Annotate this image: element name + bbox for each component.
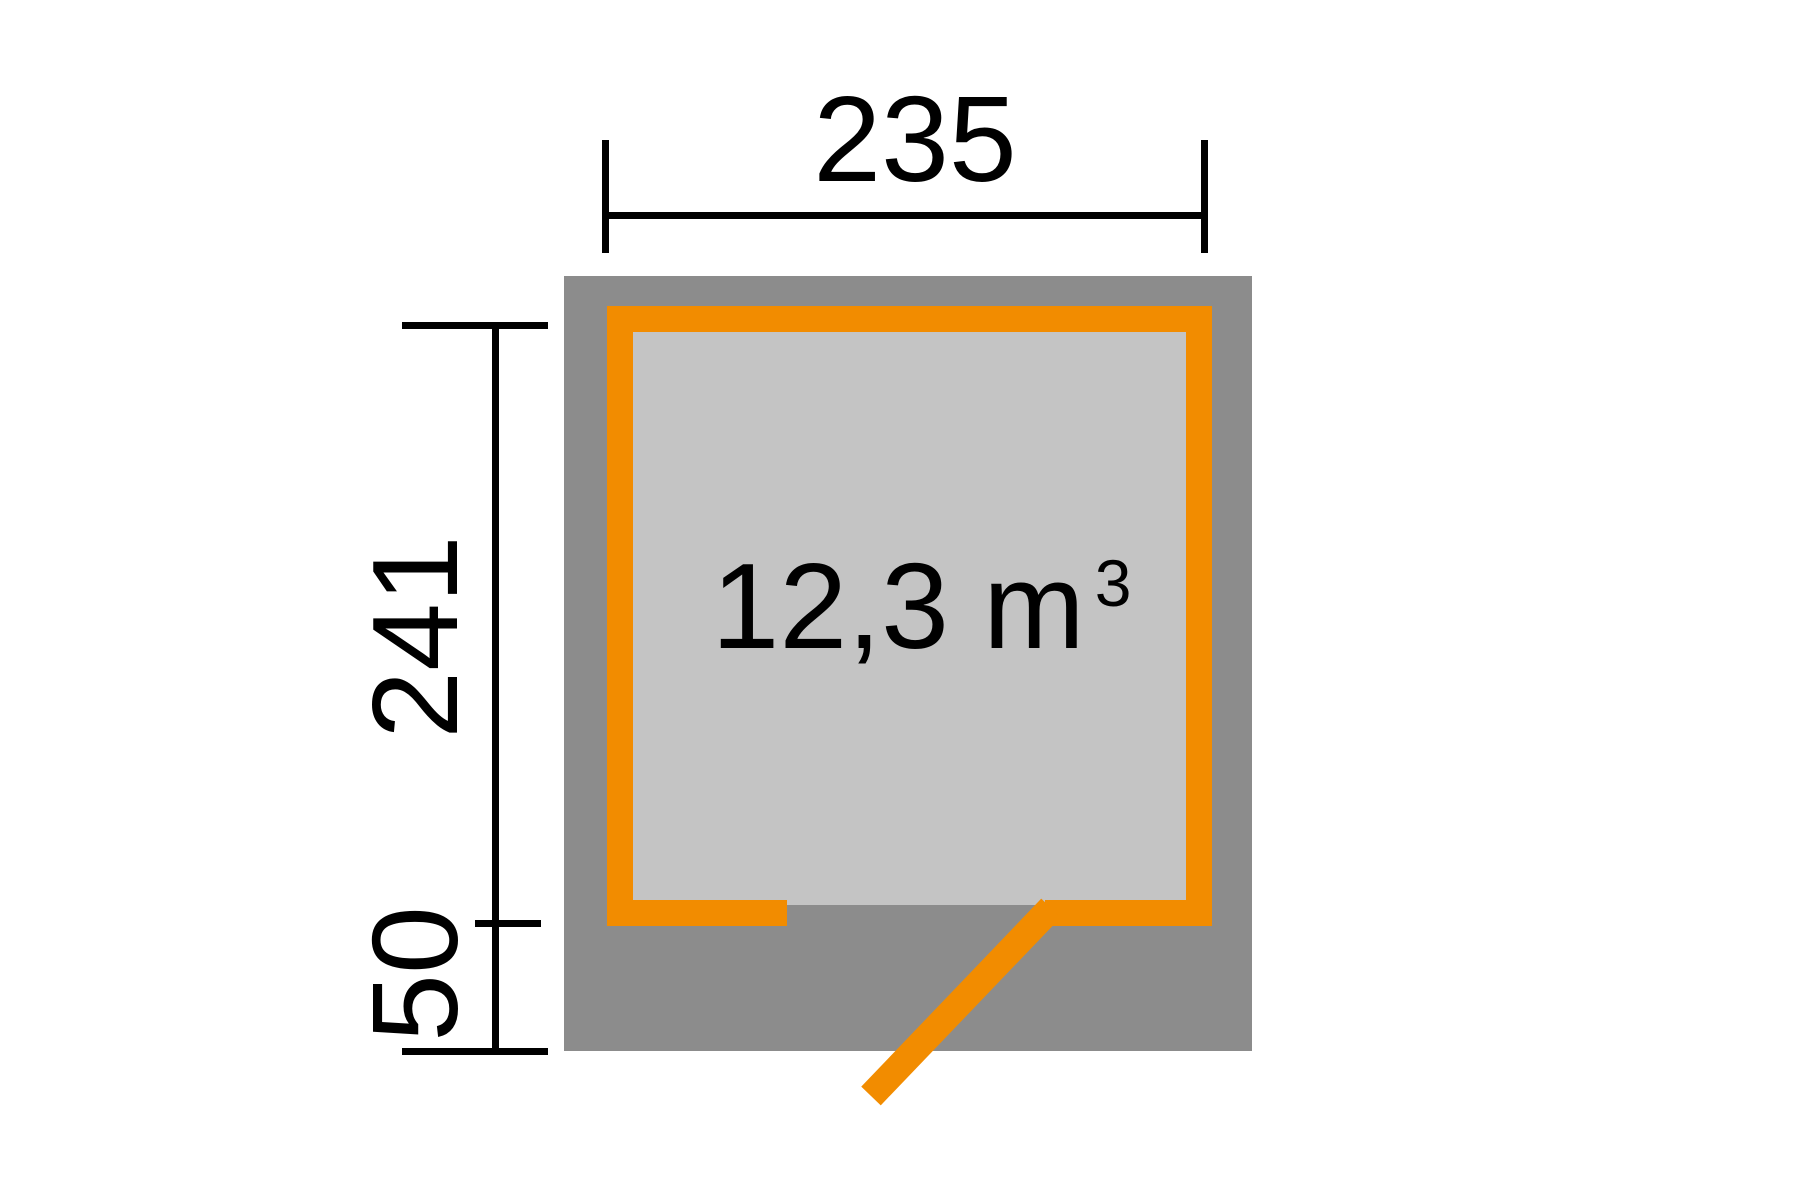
depth-dimension-tick-bottom (402, 1048, 548, 1055)
volume-exponent: 3 (1095, 546, 1132, 620)
shed-floorplan-diagram: 12,3m3 235 241 50 (0, 0, 1799, 1200)
volume-label-box: 12,3m3 (633, 332, 1186, 900)
width-dimension-label: 235 (813, 78, 1017, 200)
door-threshold-strip (787, 900, 1045, 905)
volume-label: 12,3m3 (712, 545, 1132, 667)
volume-value: 12,3 (712, 538, 949, 674)
width-dimension-tick-right (1201, 140, 1208, 253)
volume-unit: m (983, 538, 1085, 674)
width-dimension-tick-left (602, 140, 609, 253)
depth-dimension-label: 241 (354, 535, 476, 739)
depth-dimension-tick-middle (475, 920, 541, 927)
width-dimension-line (605, 212, 1205, 219)
front-offset-dimension-label: 50 (354, 906, 476, 1042)
depth-dimension-tick-top (402, 322, 548, 329)
depth-dimension-line (492, 326, 499, 1053)
door-opening (787, 905, 1045, 926)
